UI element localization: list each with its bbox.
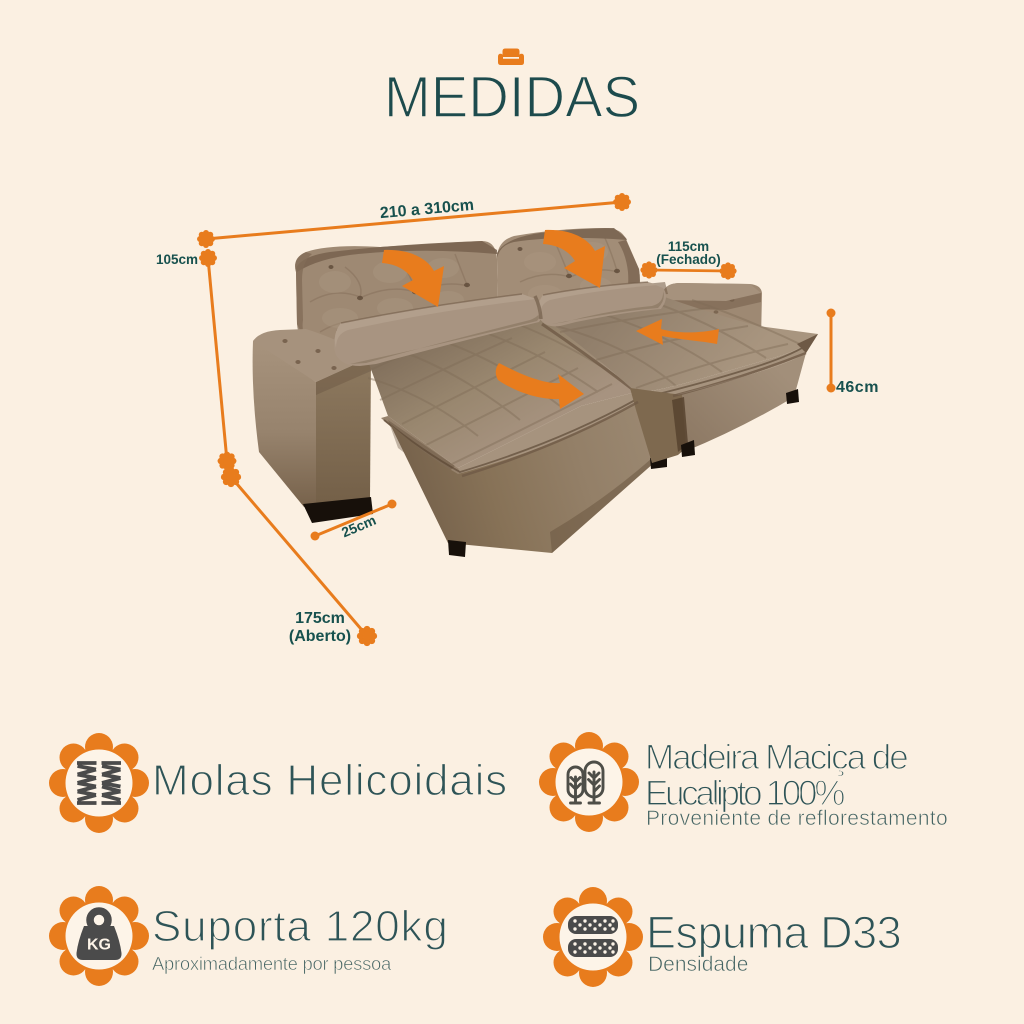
- svg-text:KG: KG: [87, 937, 111, 954]
